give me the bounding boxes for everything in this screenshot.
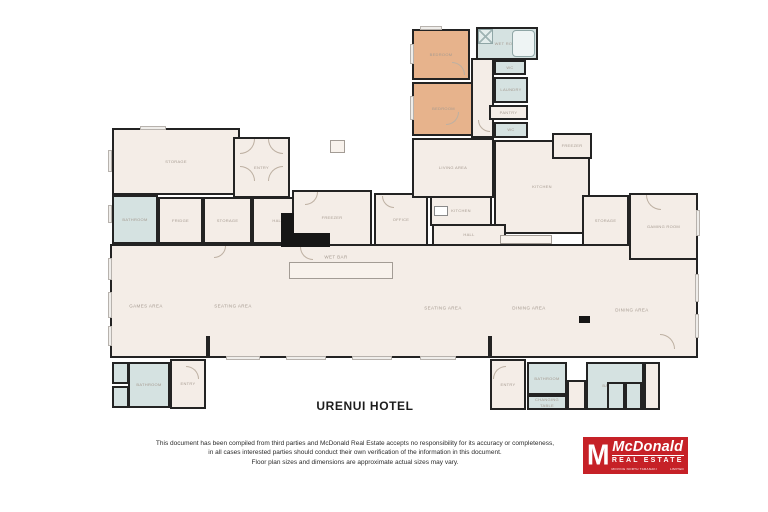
room-storage-main: STORAGE — [112, 128, 240, 195]
room-vestibule-se — [644, 362, 660, 410]
room-label: BATHROOM — [130, 364, 168, 406]
room-wc-stall-1 — [607, 382, 625, 410]
plan-title: URENUI HOTEL — [265, 399, 465, 413]
window-segment — [108, 150, 112, 172]
window-segment — [420, 26, 442, 30]
room-label: PANTRY — [491, 107, 526, 118]
window-segment — [140, 126, 166, 130]
logo-m-icon: M — [587, 441, 610, 469]
floor-plan: BEDROOMWET ROOMBEDROOMWCLAUNDRYPANTRYWCS… — [0, 0, 768, 512]
logo-tagline-left: MOVING NORTH TARANAKI — [612, 467, 657, 471]
window-segment — [108, 205, 112, 223]
window-segment — [695, 314, 699, 338]
window-segment — [226, 356, 260, 360]
window-segment — [108, 326, 112, 346]
room-storage-east: STORAGE — [582, 195, 629, 246]
wall-stub-icon — [488, 336, 492, 358]
room-label: LIVING AREA — [414, 140, 492, 196]
kitchen-counter-icon — [500, 235, 552, 244]
window-segment — [108, 292, 112, 318]
disclaimer-line: Floor plan sizes and dimensions are appr… — [60, 458, 650, 467]
window-segment — [352, 356, 392, 360]
stove-icon — [434, 206, 448, 216]
room-bedroom-2: BEDROOM — [412, 82, 475, 136]
room-storage-2: STORAGE — [203, 197, 252, 244]
room-pantry: PANTRY — [489, 105, 528, 120]
room-label: HALL — [434, 226, 504, 244]
mcdonald-real-estate-logo: M McDonald REAL ESTATE MOVING NORTH TARA… — [583, 437, 688, 474]
stairs-icon — [281, 233, 330, 247]
logo-brand: McDonald — [612, 440, 683, 455]
room-label: FRIDGE — [160, 199, 201, 242]
area-label: DINING AREA — [615, 308, 648, 313]
window-segment — [410, 96, 414, 120]
room-bathroom-west: BATHROOM — [112, 195, 158, 244]
bathtub-icon — [512, 30, 535, 57]
area-label: DINING AREA — [512, 306, 545, 311]
room-label: WC — [496, 62, 524, 73]
room-fridge-room: FRIDGE — [158, 197, 203, 244]
window-segment — [286, 356, 326, 360]
room-label: STORAGE — [205, 199, 250, 242]
window-segment — [420, 356, 456, 360]
wall-stub-icon — [206, 336, 210, 358]
room-entry-se: ENTRY — [490, 359, 526, 410]
room-label: BATHROOM — [529, 364, 565, 393]
room-label: FREEZER — [554, 135, 590, 157]
window-segment — [410, 44, 414, 64]
window-segment — [696, 210, 700, 236]
room-shower-sw — [112, 362, 129, 384]
logo-subtitle: REAL ESTATE — [612, 455, 685, 465]
disclaimer-text: This document has been compiled from thi… — [60, 439, 650, 467]
logo-tagline: MOVING NORTH TARANAKI LIMITED — [612, 467, 685, 471]
area-label: GAMES AREA — [129, 304, 163, 309]
room-label: STORAGE — [114, 130, 238, 193]
room-wc-north-1: WC — [494, 60, 526, 75]
window-segment — [108, 258, 112, 280]
room-changing-area: CHANGING TABLE — [527, 395, 567, 410]
room-label: LAUNDRY — [496, 79, 526, 101]
room-label: BEDROOM — [414, 84, 473, 134]
wall-cabinet-icon — [330, 140, 345, 153]
area-label: WET BAR — [324, 255, 347, 260]
logo-tagline-right: LIMITED — [670, 467, 684, 471]
room-label: WC — [496, 124, 526, 136]
disclaimer-line: in all cases interested parties should c… — [60, 448, 650, 457]
room-main-hall — [110, 244, 698, 358]
room-hall-mid: HALL — [432, 224, 506, 246]
room-corridor-se — [567, 380, 586, 410]
room-wc-sw — [112, 386, 129, 408]
disclaimer-line: This document has been compiled from thi… — [60, 439, 650, 448]
wet-bar-counter-icon — [289, 262, 393, 279]
room-wc-stall-2 — [625, 382, 642, 410]
room-wc-north-2: WC — [494, 122, 528, 138]
room-label: GAMING ROOM — [631, 195, 696, 258]
room-gaming-room: GAMING ROOM — [629, 193, 698, 260]
room-freezer-2: FREEZER — [552, 133, 592, 159]
room-label: BATHROOM — [114, 197, 156, 242]
room-bathroom-se-1: BATHROOM — [527, 362, 567, 395]
room-bathroom-sw: BATHROOM — [128, 362, 170, 408]
area-label: SEATING AREA — [424, 306, 461, 311]
room-label: CHANGING TABLE — [529, 397, 565, 408]
shower-icon — [478, 29, 493, 44]
room-living-area: LIVING AREA — [412, 138, 494, 198]
logo-text: McDonald REAL ESTATE MOVING NORTH TARANA… — [612, 440, 685, 471]
column-icon — [579, 316, 590, 323]
room-laundry: LAUNDRY — [494, 77, 528, 103]
room-label: STORAGE — [584, 197, 627, 244]
area-label: SEATING AREA — [214, 304, 251, 309]
window-segment — [695, 274, 699, 302]
